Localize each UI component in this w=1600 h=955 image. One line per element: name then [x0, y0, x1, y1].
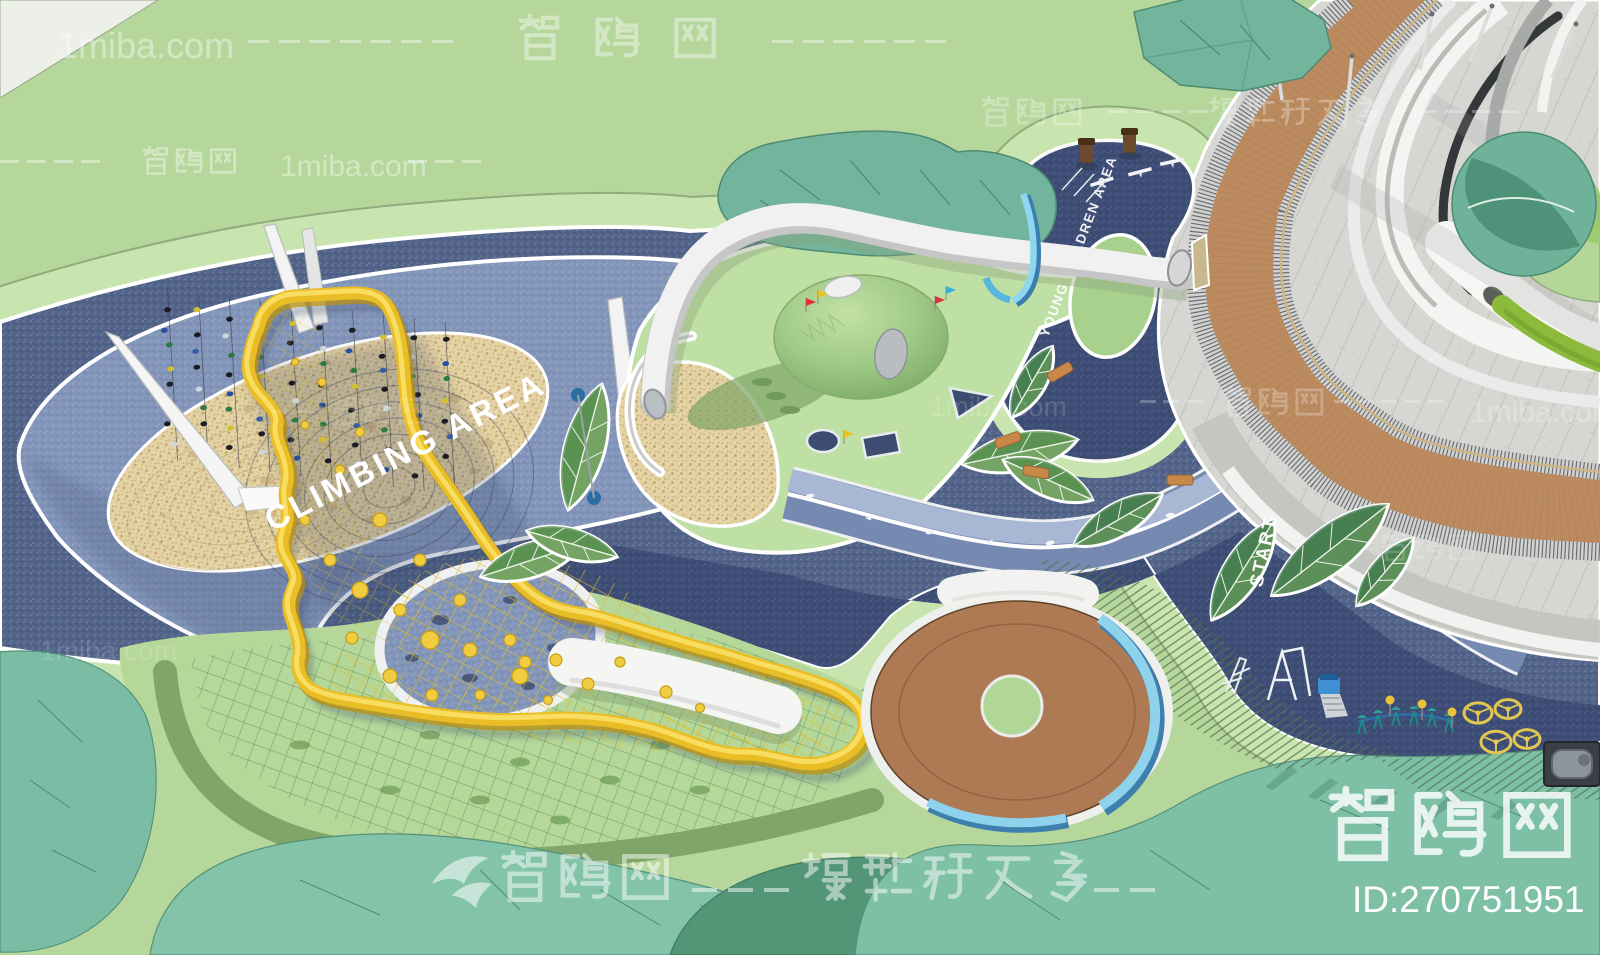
- svg-text:1miba.com: 1miba.com: [930, 391, 1067, 422]
- svg-text:ID:270751951: ID:270751951: [1352, 879, 1584, 920]
- svg-text:1miba.com: 1miba.com: [40, 635, 177, 666]
- svg-text:1miba.com: 1miba.com: [280, 150, 427, 183]
- svg-text:1miba.com: 1miba.com: [58, 25, 234, 66]
- svg-text:1miba.com: 1miba.com: [1470, 396, 1600, 429]
